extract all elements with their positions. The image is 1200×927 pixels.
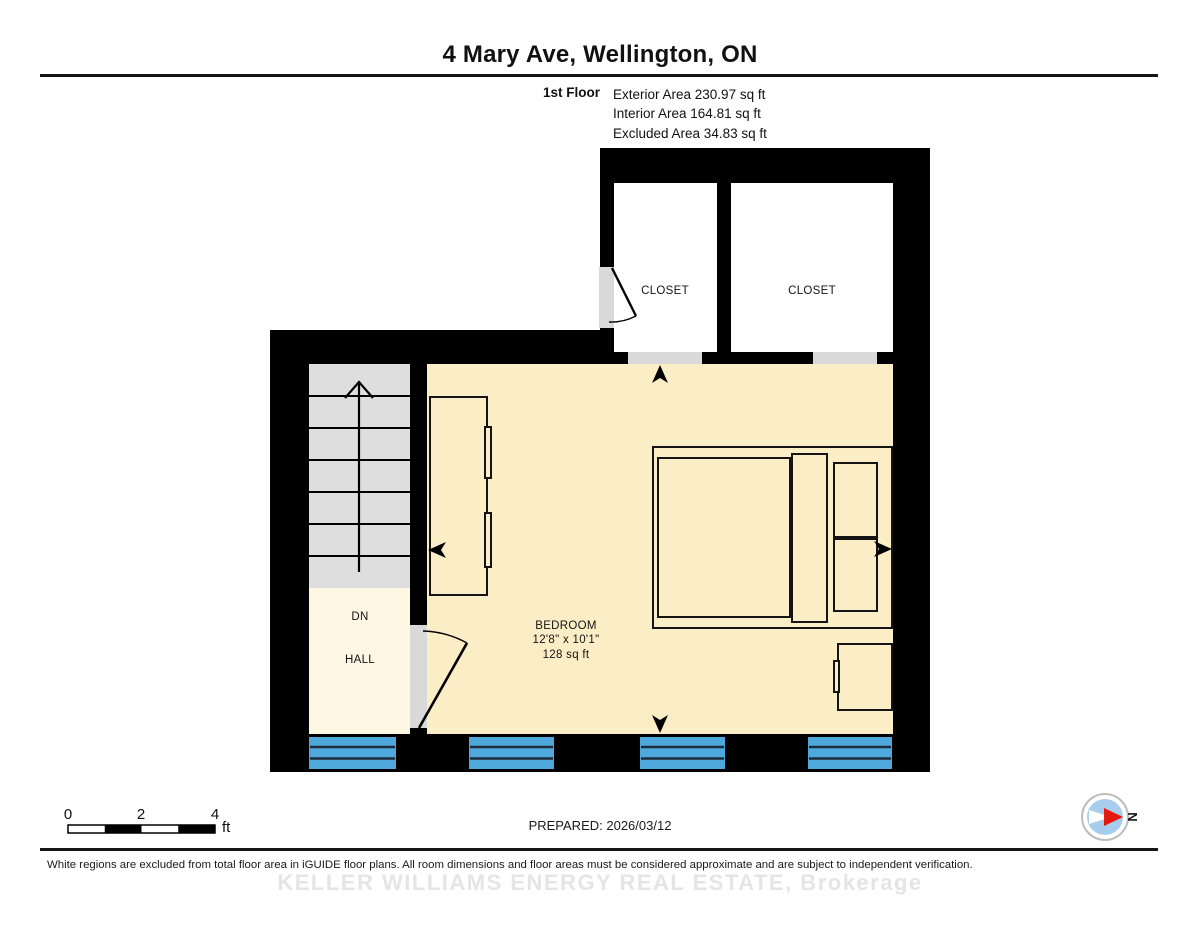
bed-pillow (834, 539, 877, 611)
scale-tick-2: 2 (130, 806, 152, 823)
dresser (430, 397, 491, 595)
footer-divider (40, 848, 1158, 851)
closet-left-floor (614, 183, 717, 352)
window (640, 737, 725, 769)
window (469, 737, 554, 769)
window (808, 737, 892, 769)
compass-north-label: N (1125, 812, 1140, 821)
compass-icon: N (1082, 794, 1140, 840)
closet-left-threshold (628, 352, 702, 364)
window (309, 737, 396, 769)
closet-left-label: CLOSET (615, 285, 715, 297)
scale-bar (68, 825, 215, 833)
prepared-date: PREPARED: 2026/03/12 (450, 818, 750, 833)
scale-unit-label: ft (222, 819, 230, 836)
bed-pillow (834, 463, 877, 537)
bedroom-area: 128 sq ft (481, 648, 651, 662)
bedroom-name: BEDROOM (481, 619, 651, 633)
closet-side-door-opening (599, 267, 614, 328)
bed-blanket-fold (792, 454, 827, 622)
dresser-handle (485, 427, 491, 478)
nightstand (834, 644, 892, 710)
bedroom-label: BEDROOM 12'8" x 10'1" 128 sq ft (481, 619, 651, 662)
nightstand-handle (834, 661, 839, 692)
floorplan-page: 4 Mary Ave, Wellington, ON 1st Floor Ext… (0, 0, 1200, 927)
brokerage-watermark: KELLER WILLIAMS ENERGY REAL ESTATE, Brok… (0, 870, 1200, 896)
floorplan-drawing: N (0, 0, 1200, 927)
hall-label: HALL (329, 654, 391, 666)
dresser-handle (485, 513, 491, 567)
closet-right-label: CLOSET (762, 285, 862, 297)
closet-right-floor (731, 183, 893, 352)
scale-tick-0: 0 (57, 806, 79, 823)
stairs-direction-label: DN (329, 611, 391, 623)
bed (653, 447, 892, 628)
hall-door-opening (410, 625, 427, 728)
bed-mattress (658, 458, 790, 617)
bedroom-dimensions: 12'8" x 10'1" (481, 633, 651, 647)
closet-right-threshold (813, 352, 877, 364)
